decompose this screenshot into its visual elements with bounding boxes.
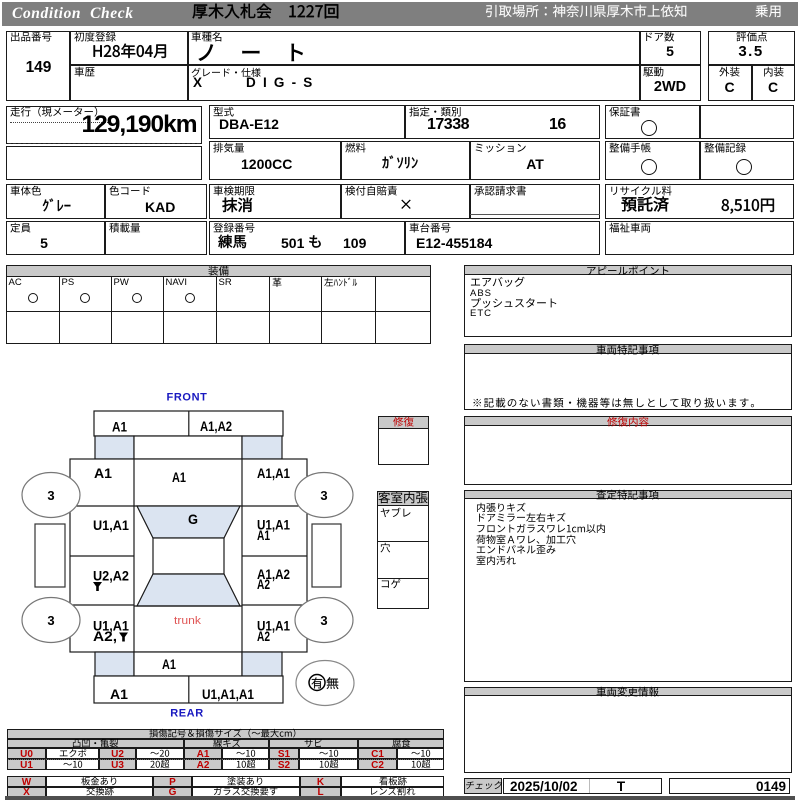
svg-text:U1,A1,A1: U1,A1,A1 — [202, 687, 254, 702]
svg-text:3: 3 — [47, 613, 54, 628]
svg-text:A1,A2: A1,A2 — [200, 419, 232, 434]
svg-text:A1: A1 — [94, 466, 113, 481]
svg-text:A1: A1 — [110, 687, 129, 702]
svg-text:3: 3 — [320, 488, 327, 503]
svg-text:A2: A2 — [257, 629, 270, 644]
svg-text:A2,: A2, — [93, 629, 117, 644]
svg-text:A1: A1 — [257, 528, 270, 543]
svg-text:3: 3 — [47, 488, 54, 503]
svg-text:U1,A1: U1,A1 — [93, 518, 129, 533]
svg-text:trunk: trunk — [174, 615, 202, 627]
svg-text:A1,A1: A1,A1 — [257, 466, 290, 481]
svg-text:U2,A2: U2,A2 — [93, 569, 129, 584]
svg-text:A1: A1 — [172, 470, 186, 485]
svg-text:REAR: REAR — [170, 708, 204, 720]
svg-text:A2: A2 — [257, 577, 270, 592]
svg-text:FRONT: FRONT — [167, 392, 208, 404]
svg-text:A1: A1 — [112, 420, 127, 435]
svg-text:A1: A1 — [162, 657, 176, 672]
svg-text:G: G — [188, 512, 198, 527]
svg-text:3: 3 — [320, 613, 327, 628]
